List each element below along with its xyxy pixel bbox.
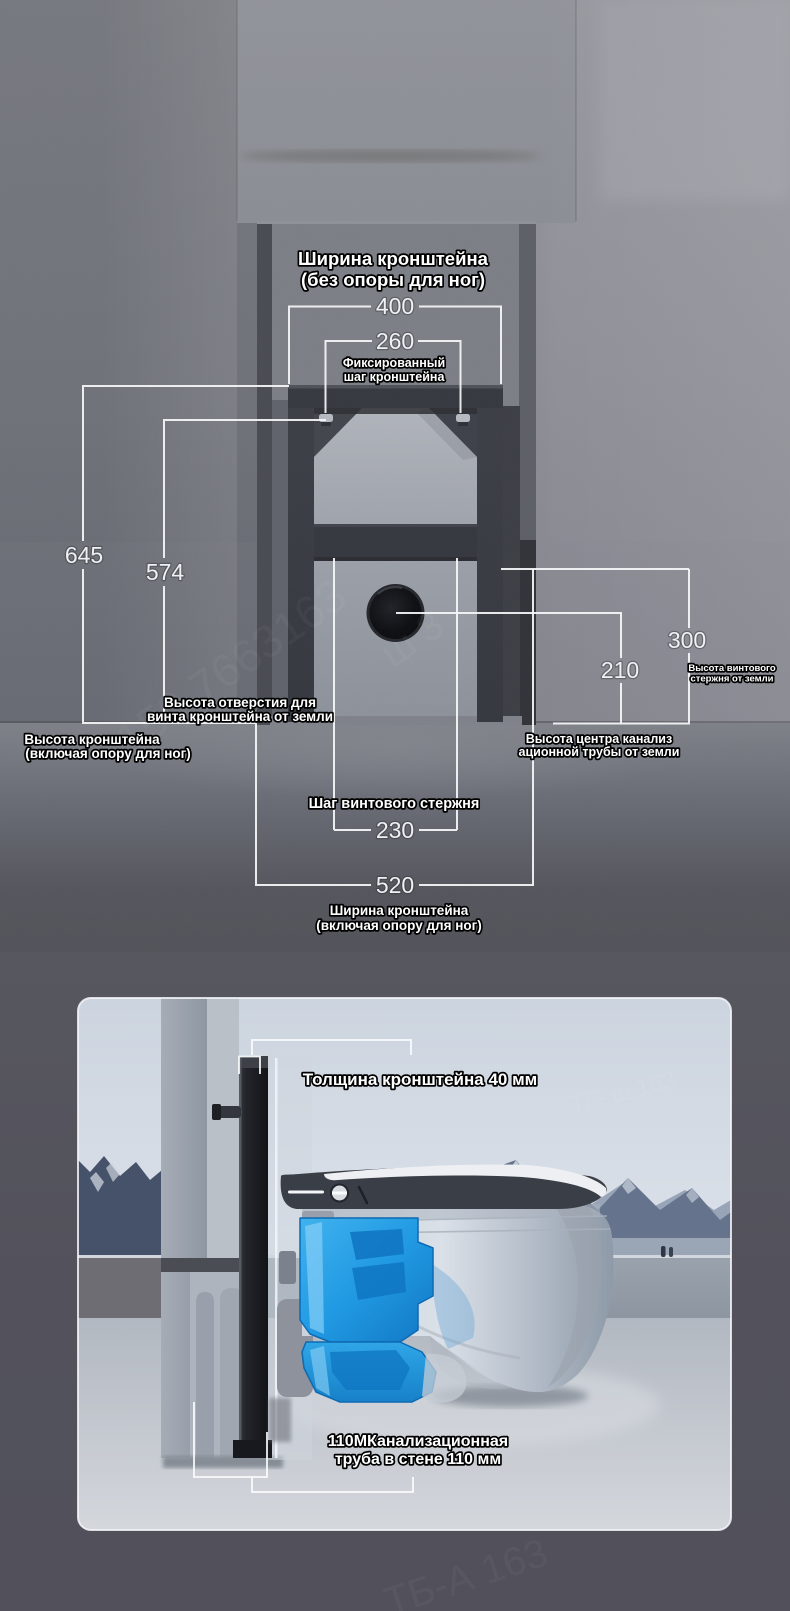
svg-text:Шаг винтового стержня: Шаг винтового стержня xyxy=(309,796,480,812)
svg-text:(включая опору для ног): (включая опору для ног) xyxy=(316,918,482,933)
svg-text:Высота центра канализ: Высота центра канализ xyxy=(526,732,672,746)
svg-text:Высота отверстия для: Высота отверстия для xyxy=(164,695,316,710)
svg-text:ационной трубы от земли: ационной трубы от земли xyxy=(519,745,680,759)
svg-text:шаг кронштейна: шаг кронштейна xyxy=(344,370,446,384)
svg-text:110МКанализационная: 110МКанализационная xyxy=(328,1433,508,1450)
svg-text:520: 520 xyxy=(376,872,414,898)
svg-text:574: 574 xyxy=(146,559,185,585)
svg-text:300: 300 xyxy=(668,627,706,653)
svg-text:стержня от земли: стержня от земли xyxy=(690,674,773,685)
svg-text:Ширина кронштейна: Ширина кронштейна xyxy=(298,248,489,269)
svg-text:230: 230 xyxy=(376,817,414,843)
svg-text:Высота кронштейна: Высота кронштейна xyxy=(24,732,160,747)
svg-text:210: 210 xyxy=(601,657,639,683)
svg-text:400: 400 xyxy=(376,293,414,319)
svg-text:260: 260 xyxy=(376,328,414,354)
svg-text:645: 645 xyxy=(65,542,103,568)
svg-text:Ширина кронштейна: Ширина кронштейна xyxy=(330,903,469,918)
svg-text:труба в стене 110 мм: труба в стене 110 мм xyxy=(335,1451,501,1468)
svg-text:(без опоры для ног): (без опоры для ног) xyxy=(301,269,485,290)
svg-text:(включая опору для ног): (включая опору для ног) xyxy=(25,746,191,761)
svg-text:Фиксированный: Фиксированный xyxy=(343,356,445,370)
svg-text:Толщина кронштейна 40 мм: Толщина кронштейна 40 мм xyxy=(303,1070,538,1089)
svg-text:Высота винтового: Высота винтового xyxy=(688,663,775,674)
svg-text:винта кронштейна от земли: винта кронштейна от земли xyxy=(147,709,333,724)
